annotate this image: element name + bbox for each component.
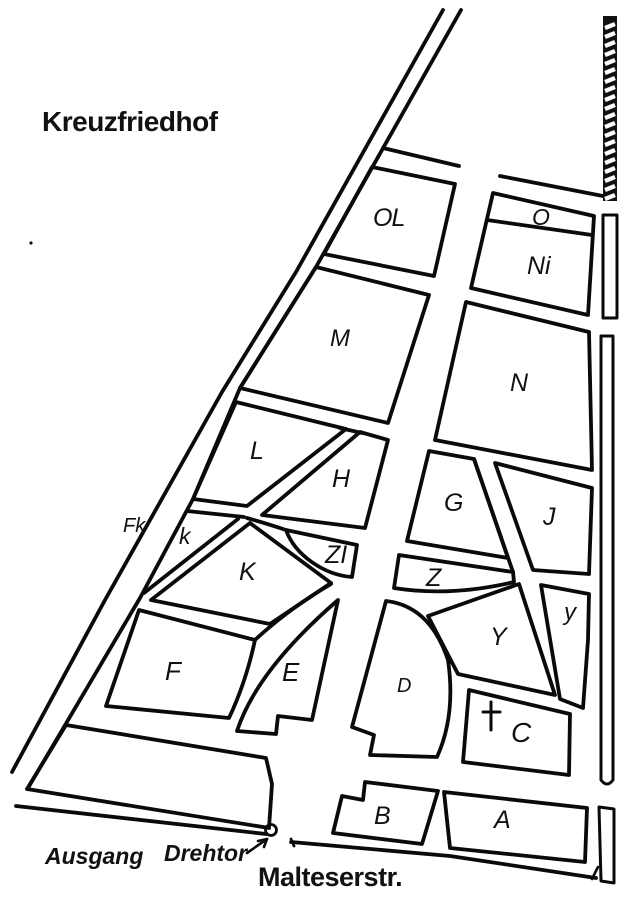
svg-text:C: C [511, 717, 532, 748]
svg-text:O: O [532, 204, 550, 230]
svg-text:D: D [397, 675, 411, 697]
svg-text:K: K [239, 558, 257, 586]
svg-text:y: y [562, 599, 578, 626]
svg-text:Fk: Fk [123, 515, 146, 537]
svg-text:H: H [332, 465, 351, 493]
svg-text:E: E [282, 657, 300, 687]
svg-text:ZI: ZI [324, 541, 347, 569]
svg-text:G: G [444, 489, 463, 517]
svg-text:A: A [492, 806, 511, 834]
svg-text:J: J [542, 503, 556, 531]
svg-text:Y: Y [490, 623, 509, 651]
svg-text:F: F [165, 656, 183, 686]
svg-text:Z: Z [425, 564, 442, 592]
svg-text:Ni: Ni [527, 252, 552, 280]
svg-text:OL: OL [373, 204, 404, 232]
svg-text:k: k [179, 523, 192, 549]
svg-text:Drehtor: Drehtor [164, 840, 248, 866]
svg-text:N: N [510, 369, 529, 397]
svg-text:Ausgang: Ausgang [44, 843, 143, 869]
svg-text:M: M [330, 325, 350, 352]
svg-text:Kreuzfriedhof: Kreuzfriedhof [42, 106, 219, 137]
svg-text:L: L [250, 437, 264, 465]
svg-text:Malteserstr.: Malteserstr. [258, 862, 402, 892]
svg-text:B: B [374, 802, 391, 830]
